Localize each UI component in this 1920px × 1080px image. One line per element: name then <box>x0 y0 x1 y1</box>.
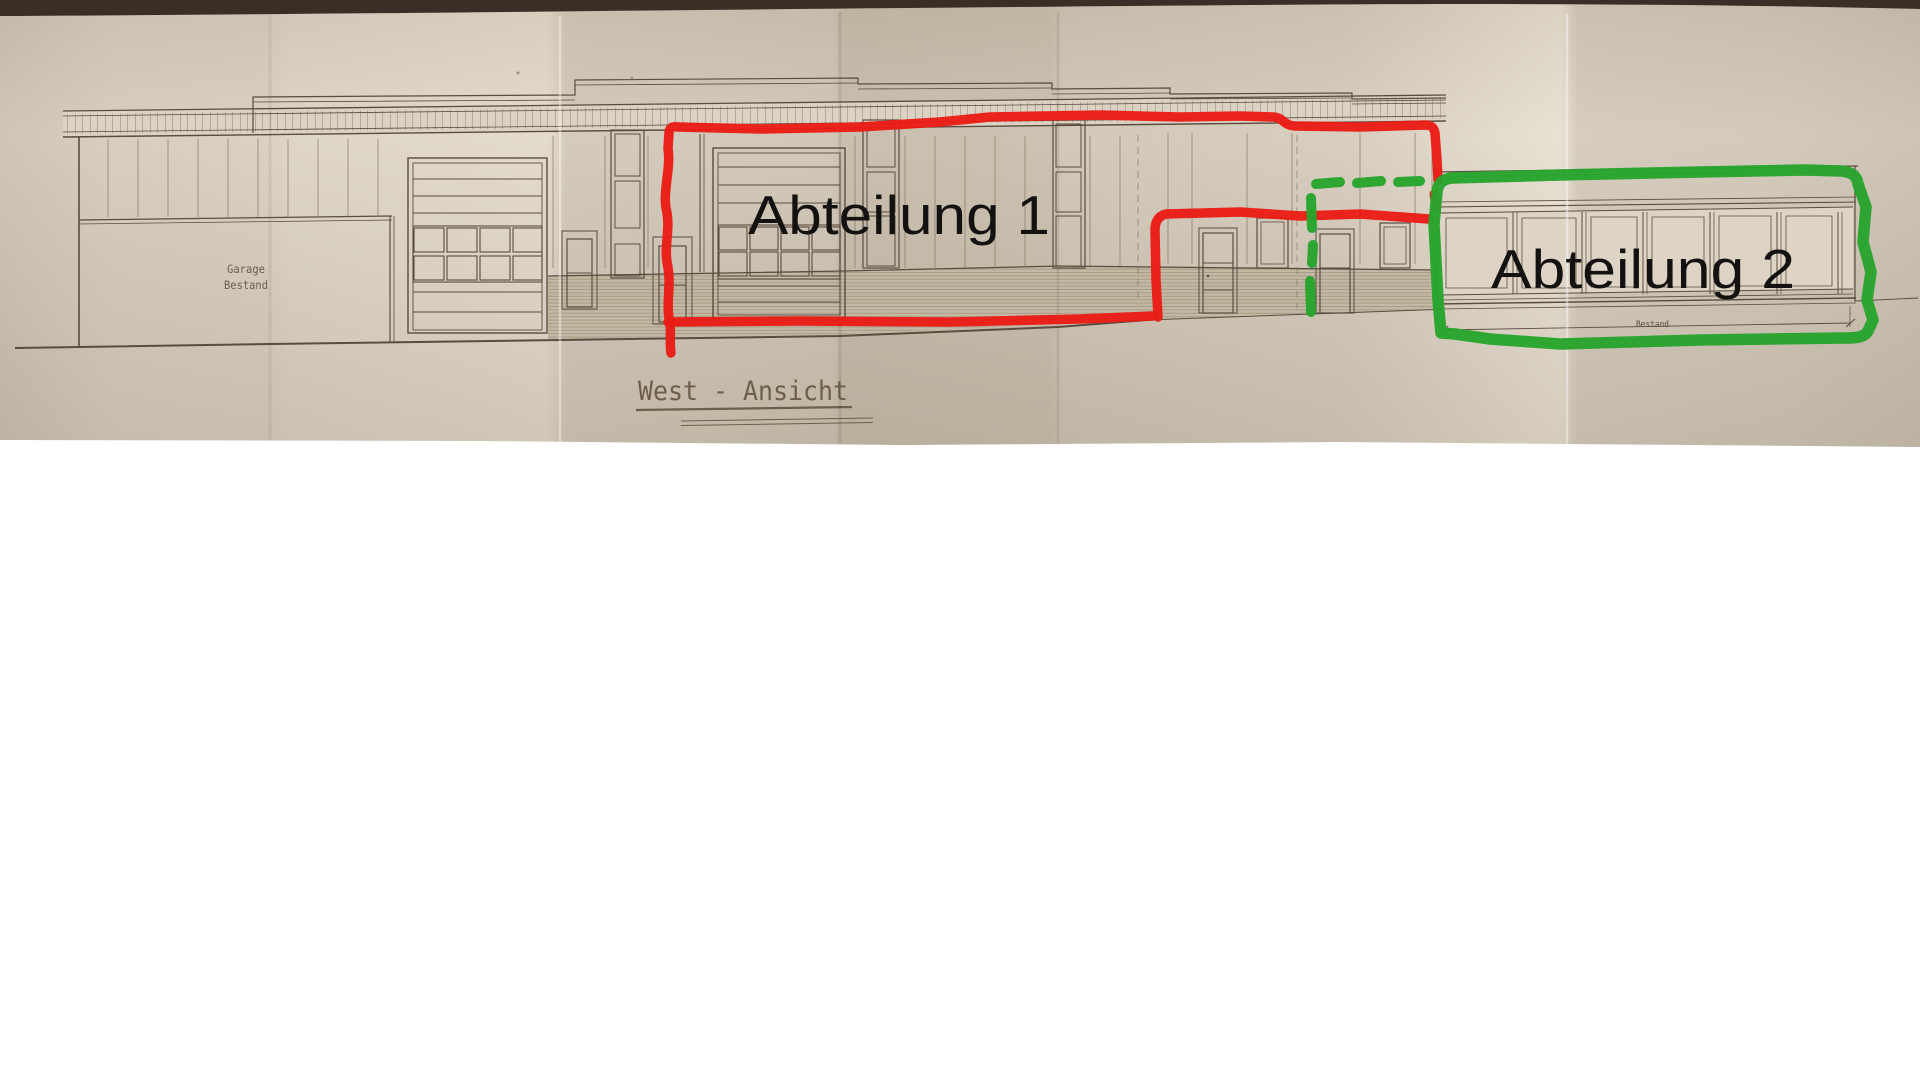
paper-speck <box>631 77 634 80</box>
abteilung1-label: Abteilung 1 <box>748 184 1050 246</box>
plinth-band <box>548 266 1436 339</box>
window-column-1 <box>611 130 644 278</box>
dimension-line: Bestand <box>1439 306 1855 334</box>
window-w2 <box>1380 223 1410 268</box>
table-backdrop-strip <box>0 0 1920 16</box>
garage-label-line1: Garage <box>227 262 265 276</box>
dimension-label: Bestand <box>1636 320 1669 330</box>
garage-door-1 <box>408 158 547 333</box>
photo-of-plan: Garage Bestand <box>0 0 1920 450</box>
abteilung2-label: Abteilung 2 <box>1491 238 1795 300</box>
view-title: West - Ansicht <box>638 376 848 407</box>
window-w1 <box>1257 218 1288 268</box>
screenshot: Garage Bestand <box>0 0 1920 1080</box>
left-wall-panel-joints <box>108 139 378 217</box>
door1-glazing <box>414 228 542 280</box>
blank-page-area <box>0 447 1920 1080</box>
garage-label-line2: Bestand <box>224 278 268 292</box>
elevation-drawing-svg: Garage Bestand <box>0 0 1920 450</box>
paper-speck <box>517 72 520 75</box>
view-title-block: West - Ansicht <box>636 376 873 426</box>
